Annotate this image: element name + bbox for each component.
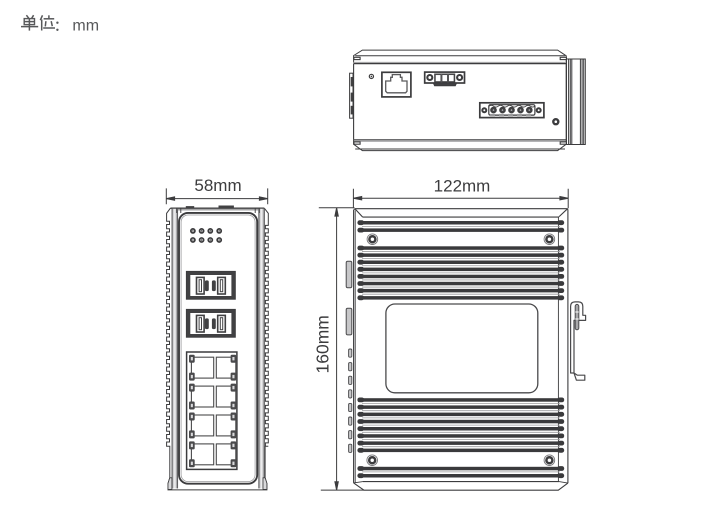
svg-text:58mm: 58mm: [194, 176, 241, 195]
svg-text:mm: mm: [72, 17, 99, 34]
svg-text:160mm: 160mm: [313, 315, 333, 373]
svg-text:122mm: 122mm: [434, 177, 491, 196]
